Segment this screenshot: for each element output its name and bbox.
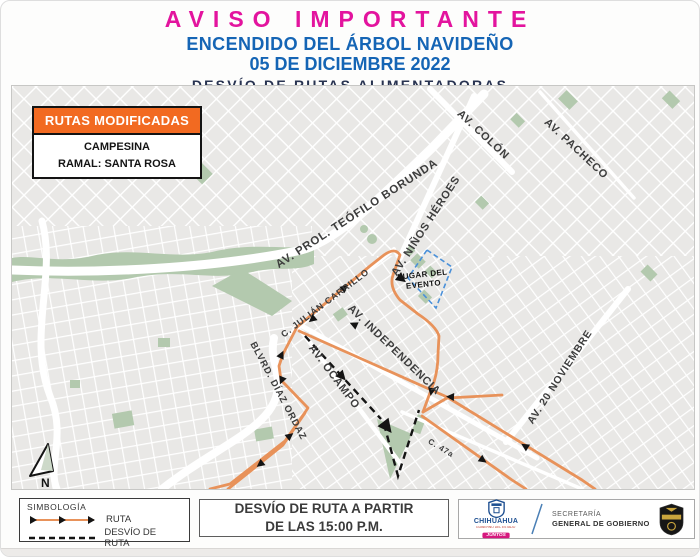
route-name: CAMPESINA [34,139,200,156]
legend-box: SIMBOLOGÍA RUTA DESVÍO DE RUTA [19,498,190,542]
north-label: N [41,476,50,489]
transport-badge-icon [658,503,685,536]
legend-route-row: RUTA [27,514,182,525]
event-date: 05 DE DICIEMBRE 2022 [1,54,699,74]
detour-notice-poster: AVISO IMPORTANTE ENCENDIDO DEL ÁRBOL NAV… [0,0,700,557]
city-map: N RUTAS MODIFICADAS CAMPESINA RAMAL: SAN… [11,85,695,490]
secretary-line1: SECRETARÍA [552,510,652,519]
detour-line-icon [27,534,95,542]
header: AVISO IMPORTANTE ENCENDIDO DEL ÁRBOL NAV… [1,7,699,94]
detour-time-notice: DESVÍO DE RUTA A PARTIR DE LAS 15:00 P.M… [199,499,449,537]
footer-logos: CHIHUAHUA GOBIERNO DEL ESTADO JUNTOS SEC… [458,499,695,539]
legend-detour-label: DESVÍO DE RUTA [104,527,182,549]
secretary-line2: GENERAL DE GOBIERNO [552,519,652,529]
slash-divider-icon [530,502,544,536]
chihuahua-shield-icon [488,499,505,518]
notice-line1: DESVÍO DE RUTA A PARTIR [200,500,448,518]
secretary-block: SECRETARÍA GENERAL DE GOBIERNO [550,510,652,529]
bottom-strip [1,548,699,556]
route-line-icon [27,515,97,525]
modified-routes-list: CAMPESINA RAMAL: SANTA ROSA [32,135,202,179]
page-title: AVISO IMPORTANTE [1,7,699,33]
legend-detour-row: DESVÍO DE RUTA [27,527,182,549]
state-tagline: GOBIERNO DEL ESTADO [476,526,515,529]
notice-line2: DE LAS 15:00 P.M. [200,518,448,536]
modified-routes-box: RUTAS MODIFICADAS CAMPESINA RAMAL: SANTA… [32,106,202,179]
legend-route-label: RUTA [106,514,131,525]
state-logo: CHIHUAHUA GOBIERNO DEL ESTADO JUNTOS [468,499,524,538]
route-branch: RAMAL: SANTA ROSA [34,156,200,173]
state-name: CHIHUAHUA [474,518,518,526]
event-subtitle: ENCENDIDO DEL ÁRBOL NAVIDEÑO [1,34,699,54]
modified-routes-title: RUTAS MODIFICADAS [32,106,202,135]
legend-title: SIMBOLOGÍA [27,502,182,512]
state-slogan-badge: JUNTOS [482,533,509,538]
